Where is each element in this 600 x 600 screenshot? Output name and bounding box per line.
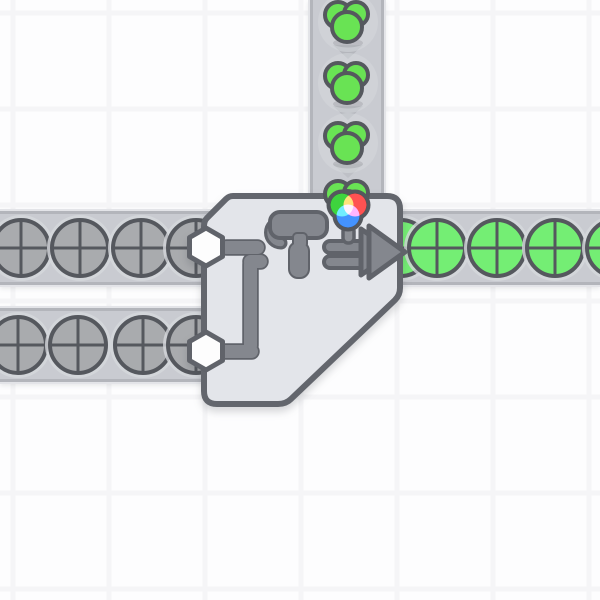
input-connector-icon (190, 332, 223, 370)
shape-item-circle-green (464, 215, 530, 281)
factory-scene[interactable] (0, 0, 600, 600)
color-item-green (318, 53, 378, 113)
shape-item-circle-uncolored (45, 312, 111, 378)
game-canvas[interactable] (0, 0, 600, 600)
shape-item-circle-green (404, 215, 470, 281)
shape-item-circle-uncolored (47, 215, 113, 281)
input-connector-icon (190, 228, 223, 266)
color-item-green (318, 113, 378, 173)
shape-item-circle-green (522, 215, 588, 281)
painter-machine[interactable] (190, 196, 406, 404)
